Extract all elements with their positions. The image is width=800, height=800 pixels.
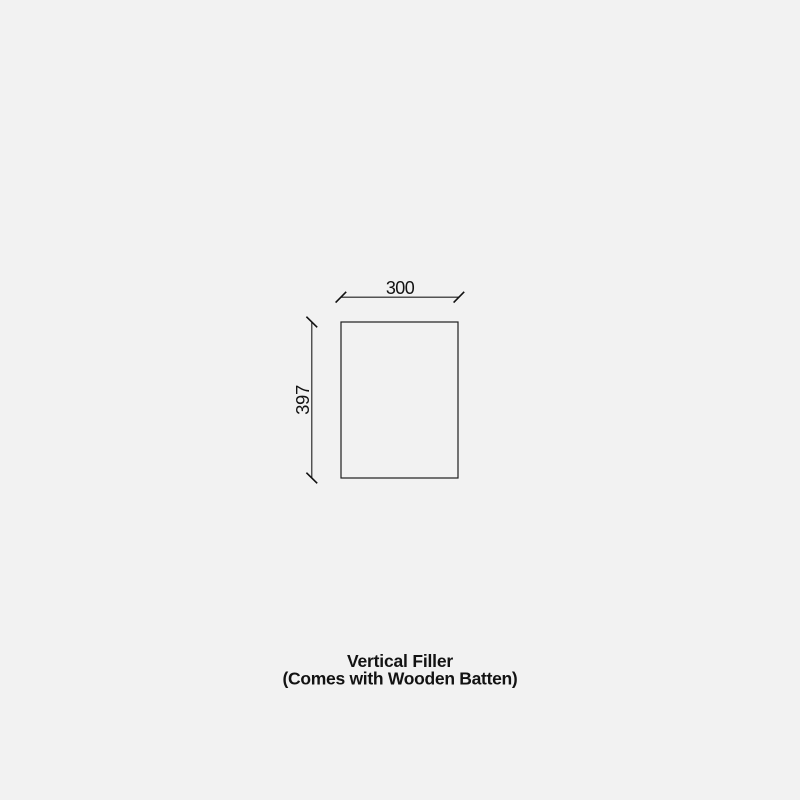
svg-text:(Comes with Wooden Batten): (Comes with Wooden Batten) — [283, 668, 518, 688]
svg-text:397: 397 — [292, 385, 313, 415]
svg-text:300: 300 — [386, 278, 415, 298]
